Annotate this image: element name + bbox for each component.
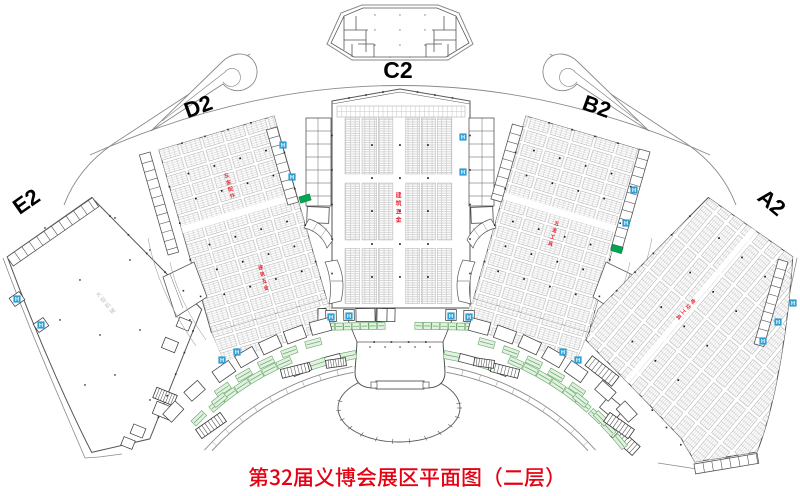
svg-text:E2: E2	[8, 183, 44, 219]
svg-text:H: H	[561, 350, 565, 356]
svg-text:H: H	[761, 339, 765, 345]
svg-text:D2: D2	[181, 90, 216, 123]
svg-text:H: H	[576, 358, 580, 364]
svg-text:H: H	[632, 188, 636, 194]
svg-text:H: H	[347, 314, 351, 320]
svg-text:A2: A2	[753, 184, 791, 221]
svg-text:H: H	[290, 175, 294, 181]
svg-text:H: H	[467, 315, 471, 321]
svg-text:H: H	[281, 143, 285, 149]
svg-text:H: H	[235, 350, 239, 356]
svg-text:H: H	[39, 323, 43, 329]
svg-text:H: H	[791, 301, 795, 307]
svg-text:H: H	[461, 170, 465, 176]
svg-text:H: H	[15, 297, 19, 303]
svg-text:C2: C2	[383, 57, 412, 83]
svg-text:H: H	[220, 358, 224, 364]
svg-text:H: H	[329, 315, 333, 321]
svg-text:H: H	[624, 221, 628, 227]
svg-text:H: H	[449, 314, 453, 320]
svg-text:H: H	[776, 320, 780, 326]
svg-text:H: H	[461, 135, 465, 141]
